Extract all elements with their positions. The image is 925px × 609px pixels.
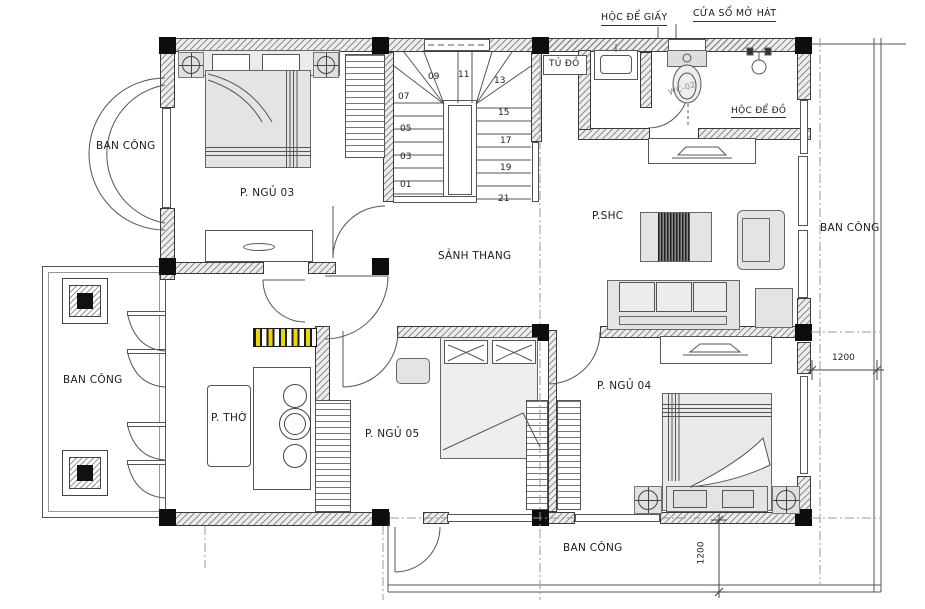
pshc-sofa-base bbox=[619, 316, 727, 325]
wall-bottom-left bbox=[160, 512, 390, 526]
stair-number: 19 bbox=[500, 163, 511, 173]
wall-bed5-bed4 bbox=[548, 330, 557, 512]
pshc-sofa-cushion bbox=[619, 282, 655, 312]
wall-toilet-stub bbox=[640, 52, 652, 108]
stair-number: 21 bbox=[498, 194, 509, 204]
stair-spine-inner bbox=[448, 105, 472, 195]
pshc-tv bbox=[658, 213, 690, 261]
stair-number: 05 bbox=[400, 124, 411, 134]
label-bedroom3: P. NGỦ 03 bbox=[240, 187, 294, 199]
bath-sink-basin bbox=[600, 55, 632, 74]
bed4-bench-cushion bbox=[673, 490, 707, 508]
bed4-nightstand bbox=[634, 486, 662, 514]
bed4-bench-cushion bbox=[722, 490, 754, 508]
bed3-blanket-stripe-h bbox=[205, 144, 311, 156]
column bbox=[159, 509, 176, 526]
planter bbox=[62, 278, 108, 324]
label-paper-shelf: HỘC ĐỂ GIẤY bbox=[601, 12, 667, 26]
label-closet: TỦ ĐỒ bbox=[549, 59, 580, 69]
label-tilt-window: CỬA SỔ MỞ HÁT bbox=[693, 8, 776, 22]
curved-balcony-arcs bbox=[89, 78, 165, 230]
bed4-tv-dresser bbox=[660, 336, 772, 364]
column bbox=[795, 37, 812, 54]
stair-number: 17 bbox=[500, 136, 511, 146]
window-top-stair bbox=[424, 39, 490, 51]
dimension-bottom: 1200 bbox=[696, 542, 706, 565]
window-bottom-1 bbox=[447, 514, 533, 522]
label-wc-code: WC-02 bbox=[667, 80, 696, 97]
column bbox=[532, 509, 549, 526]
bed3-pillow bbox=[212, 54, 250, 71]
floor-plan: 01 03 05 07 09 11 13 15 17 19 21 bbox=[0, 0, 925, 609]
label-bedroom5: P. NGỦ 05 bbox=[365, 428, 419, 440]
decorative-screen bbox=[253, 328, 317, 347]
label-family-room: P.SHC bbox=[592, 210, 623, 222]
label-storage-shelf: HỘC ĐỂ ĐỒ bbox=[731, 106, 786, 118]
bed4-blanket-stripe-v bbox=[668, 393, 680, 481]
bed5-pillow bbox=[492, 340, 536, 364]
label-balcony-right: BAN CÔNG bbox=[820, 222, 880, 234]
stair-number: 01 bbox=[400, 180, 411, 190]
wall-stair-right bbox=[531, 52, 542, 142]
worship-wardrobe bbox=[315, 400, 351, 512]
dimension-right: 1200 bbox=[832, 353, 855, 363]
column bbox=[532, 37, 549, 54]
incense-bowl bbox=[283, 444, 307, 468]
fold-door-leaf bbox=[127, 311, 166, 316]
bed5-wardrobe bbox=[526, 400, 548, 510]
label-balcony-bottom: BAN CÔNG bbox=[563, 542, 623, 554]
label-balcony-left: BAN CÔNG bbox=[63, 374, 123, 386]
stair-number: 11 bbox=[458, 70, 469, 80]
incense-bowl-inner bbox=[284, 413, 306, 435]
stair-number: 09 bbox=[428, 72, 439, 82]
stair-number: 03 bbox=[400, 152, 411, 162]
stair-number: 15 bbox=[498, 108, 509, 118]
worship-table bbox=[207, 385, 251, 467]
wall-right-b bbox=[797, 298, 811, 326]
stair-number: 07 bbox=[398, 92, 409, 102]
label-stair-hall: SẢNH THANG bbox=[438, 250, 511, 262]
column bbox=[795, 324, 812, 341]
window-right-2 bbox=[800, 376, 808, 474]
pshc-sofa-cushion bbox=[656, 282, 692, 312]
label-balcony-top-left: BAN CÔNG bbox=[96, 140, 156, 152]
column bbox=[372, 258, 389, 275]
fold-door-leaf bbox=[127, 422, 166, 427]
fold-door-leaf bbox=[127, 349, 166, 354]
wall-corridor-west bbox=[315, 326, 330, 402]
stair-number: 13 bbox=[494, 76, 505, 86]
wall-right-c bbox=[797, 342, 811, 374]
window-right-1 bbox=[800, 100, 808, 154]
pshc-cabinet bbox=[648, 138, 756, 164]
planter bbox=[62, 450, 108, 496]
column bbox=[372, 509, 389, 526]
window-bottom-2 bbox=[575, 514, 660, 522]
fold-door-leaf bbox=[127, 460, 166, 465]
window-left-curved bbox=[162, 108, 171, 208]
bed3-nightstand bbox=[178, 52, 204, 78]
label-bedroom4: P. NGỦ 04 bbox=[597, 380, 651, 392]
column bbox=[372, 37, 389, 54]
bed5-pillow bbox=[444, 340, 488, 364]
pshc-armchair-seat bbox=[742, 218, 770, 262]
column bbox=[159, 37, 176, 54]
door-leaf-right-2 bbox=[798, 230, 808, 298]
bed3-wardrobe bbox=[345, 54, 385, 158]
toilet-tank bbox=[667, 50, 707, 67]
wall-bottom-b bbox=[547, 512, 575, 524]
bed5-desk bbox=[396, 358, 430, 384]
bed4-nightstand bbox=[772, 486, 800, 514]
wall-bed3-south-b bbox=[308, 262, 336, 274]
wall-bottom-a bbox=[423, 512, 449, 524]
incense-bowl bbox=[283, 384, 307, 408]
bed4-wardrobe bbox=[557, 400, 581, 510]
stair-well-rail bbox=[532, 142, 539, 202]
bed3-dresser-handle bbox=[243, 243, 275, 251]
pshc-sofa-cushion bbox=[693, 282, 727, 312]
bed3-pillow bbox=[262, 54, 300, 71]
bed3-nightstand bbox=[313, 52, 339, 78]
pshc-side-table bbox=[755, 288, 793, 328]
stair-landing-edge bbox=[393, 196, 477, 203]
label-worship-room: P. THỜ bbox=[211, 412, 248, 424]
column bbox=[159, 258, 176, 275]
door-leaf-right-1 bbox=[798, 156, 808, 226]
